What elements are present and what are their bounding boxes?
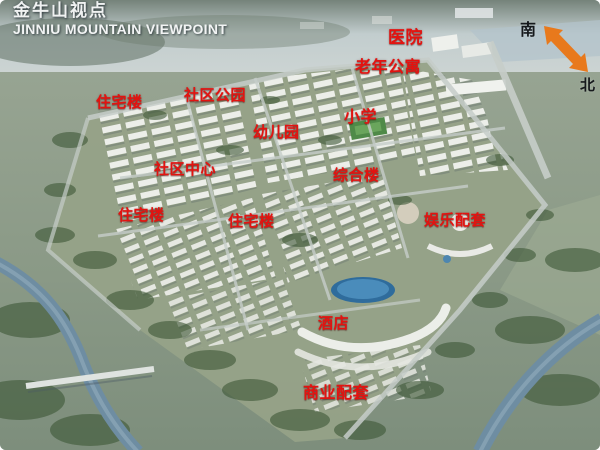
map-label-elementary-school: 小学 [344,108,377,126]
map-label-residential-2: 住宅楼 [118,207,165,224]
page-title-zh: 金牛山视点 [13,2,227,21]
page-title-en: JINNIU MOUNTAIN VIEWPOINT [13,21,227,37]
map-label-hotel: 酒店 [318,315,349,332]
aerial-rendering [0,0,600,450]
compass-south-label: 南 [520,16,536,40]
map-label-community-park: 社区公园 [184,87,246,104]
map-label-residential-1: 住宅楼 [96,94,143,111]
map-label-entertainment: 娱乐配套 [424,212,486,229]
map-label-senior-apartments: 老年公寓 [355,58,421,76]
map-label-residential-3: 住宅楼 [228,213,275,230]
map-label-complex-building: 综合楼 [333,167,380,184]
aerial-viewpoint-image: 金牛山视点 JINNIU MOUNTAIN VIEWPOINT 南 北 医院老年… [0,0,600,450]
title-block: 金牛山视点 JINNIU MOUNTAIN VIEWPOINT [13,2,227,37]
map-label-kindergarten: 幼儿园 [253,124,300,141]
compass-north-label: 北 [580,74,595,95]
map-label-community-center: 社区中心 [154,161,216,178]
map-label-hospital: 医院 [388,29,423,48]
plaza [397,202,419,224]
map-label-commercial: 商业配套 [303,384,369,402]
lake [331,277,395,303]
